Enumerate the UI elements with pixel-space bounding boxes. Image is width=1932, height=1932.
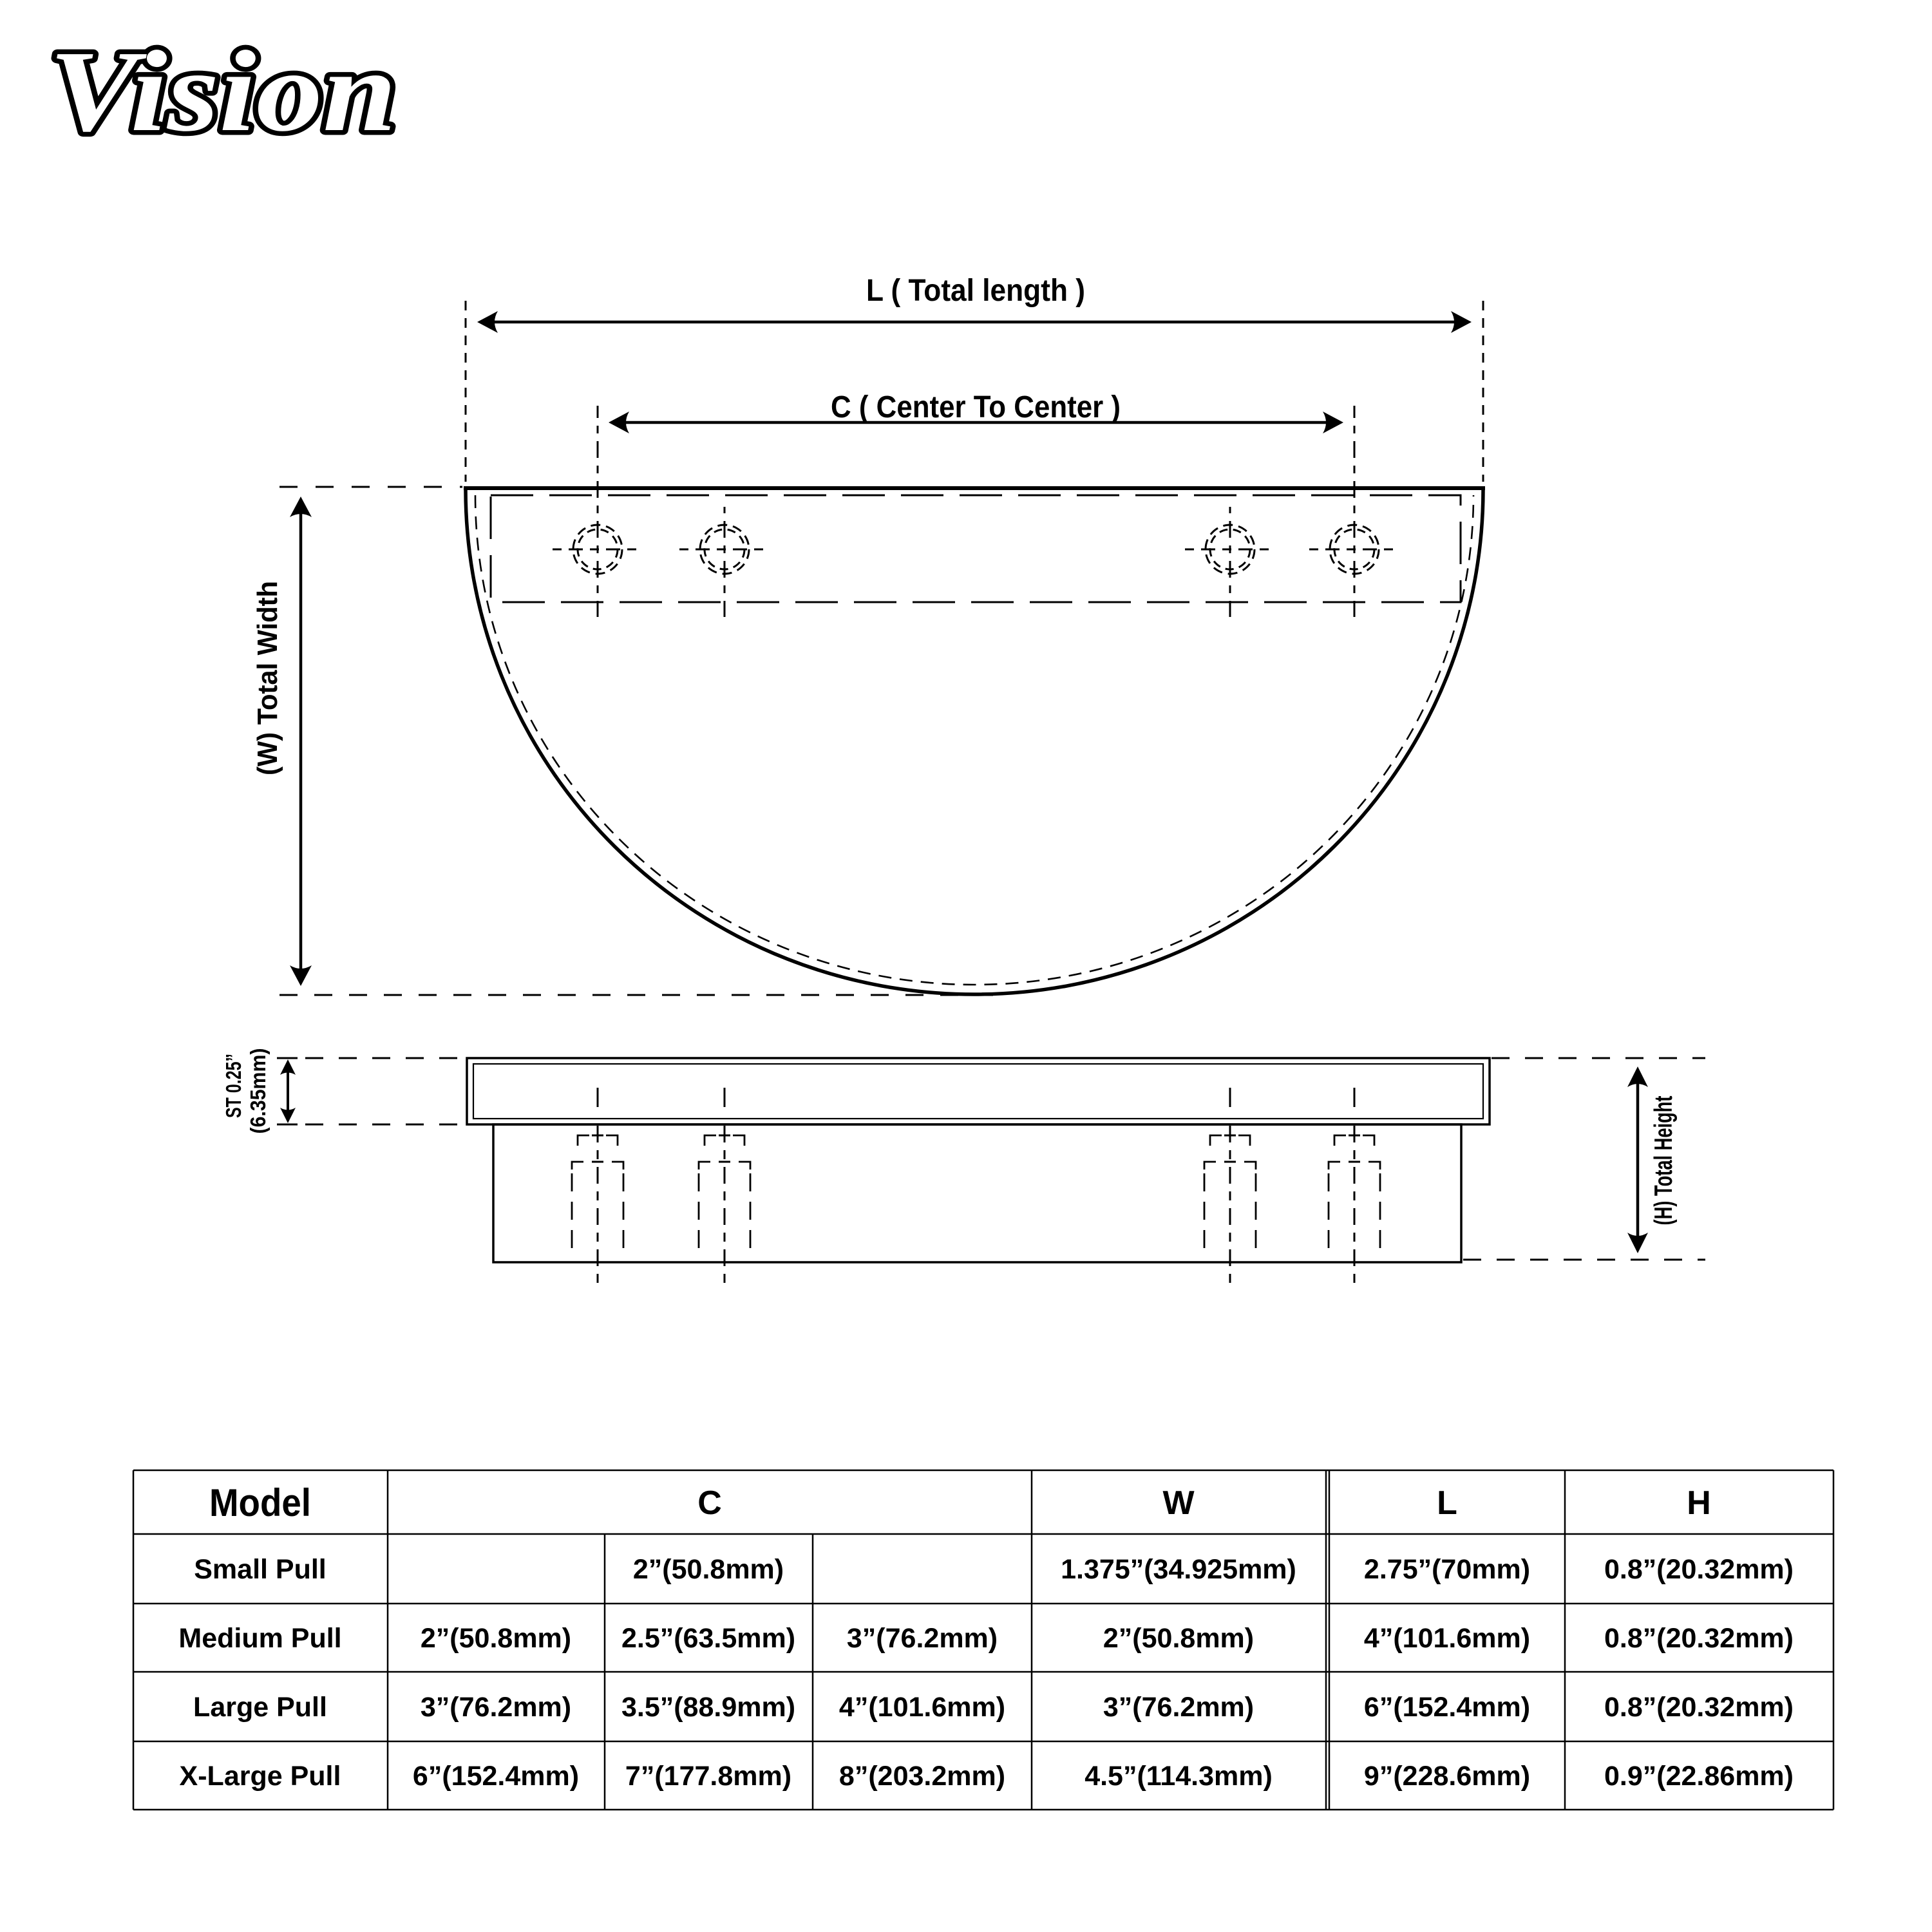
svg-text:W: W <box>1162 1484 1195 1522</box>
svg-text:6”(152.4mm): 6”(152.4mm) <box>1364 1692 1530 1723</box>
svg-text:X-Large Pull: X-Large Pull <box>180 1761 341 1792</box>
svg-text:Large Pull: Large Pull <box>193 1692 327 1723</box>
svg-text:4”(101.6mm): 4”(101.6mm) <box>1364 1623 1530 1654</box>
svg-text:3.5”(88.9mm): 3.5”(88.9mm) <box>621 1692 795 1723</box>
svg-text:4.5”(114.3mm): 4.5”(114.3mm) <box>1084 1761 1273 1792</box>
svg-text:(W) Total Width: (W) Total Width <box>252 581 283 775</box>
svg-text:0.8”(20.32mm): 0.8”(20.32mm) <box>1604 1554 1794 1585</box>
svg-text:Model: Model <box>209 1481 311 1524</box>
svg-text:4”(101.6mm): 4”(101.6mm) <box>839 1692 1005 1723</box>
svg-text:2”(50.8mm): 2”(50.8mm) <box>633 1554 784 1585</box>
svg-text:C: C <box>697 1484 722 1522</box>
svg-text:0.8”(20.32mm): 0.8”(20.32mm) <box>1604 1623 1794 1654</box>
svg-text:0.8”(20.32mm): 0.8”(20.32mm) <box>1604 1692 1794 1723</box>
svg-text:3”(76.2mm): 3”(76.2mm) <box>847 1623 998 1654</box>
svg-text:2”(50.8mm): 2”(50.8mm) <box>1103 1623 1254 1654</box>
svg-text:9”(228.6mm): 9”(228.6mm) <box>1364 1761 1530 1792</box>
svg-text:C ( Center To Center ): C ( Center To Center ) <box>831 390 1121 424</box>
svg-text:7”(177.8mm): 7”(177.8mm) <box>625 1761 791 1792</box>
svg-text:2”(50.8mm): 2”(50.8mm) <box>421 1623 571 1654</box>
svg-text:Medium Pull: Medium Pull <box>178 1623 341 1654</box>
svg-text:3”(76.2mm): 3”(76.2mm) <box>421 1692 571 1723</box>
svg-text:L: L <box>1437 1484 1457 1522</box>
svg-text:8”(203.2mm): 8”(203.2mm) <box>839 1761 1005 1792</box>
svg-text:1.375”(34.925mm): 1.375”(34.925mm) <box>1061 1554 1296 1585</box>
svg-text:L ( Total length ): L ( Total length ) <box>866 274 1085 308</box>
svg-text:(6.35mm): (6.35mm) <box>246 1048 270 1134</box>
svg-text:6”(152.4mm): 6”(152.4mm) <box>413 1761 579 1792</box>
svg-text:Small Pull: Small Pull <box>194 1554 327 1585</box>
svg-text:ST 0.25”: ST 0.25” <box>222 1054 245 1118</box>
svg-text:2.5”(63.5mm): 2.5”(63.5mm) <box>621 1623 795 1654</box>
svg-text:(H) Total Height: (H) Total Height <box>1650 1095 1678 1225</box>
svg-text:0.9”(22.86mm): 0.9”(22.86mm) <box>1604 1761 1794 1792</box>
svg-text:3”(76.2mm): 3”(76.2mm) <box>1103 1692 1254 1723</box>
svg-text:Vision: Vision <box>49 27 397 155</box>
svg-text:H: H <box>1687 1484 1711 1522</box>
svg-text:2.75”(70mm): 2.75”(70mm) <box>1364 1554 1530 1585</box>
